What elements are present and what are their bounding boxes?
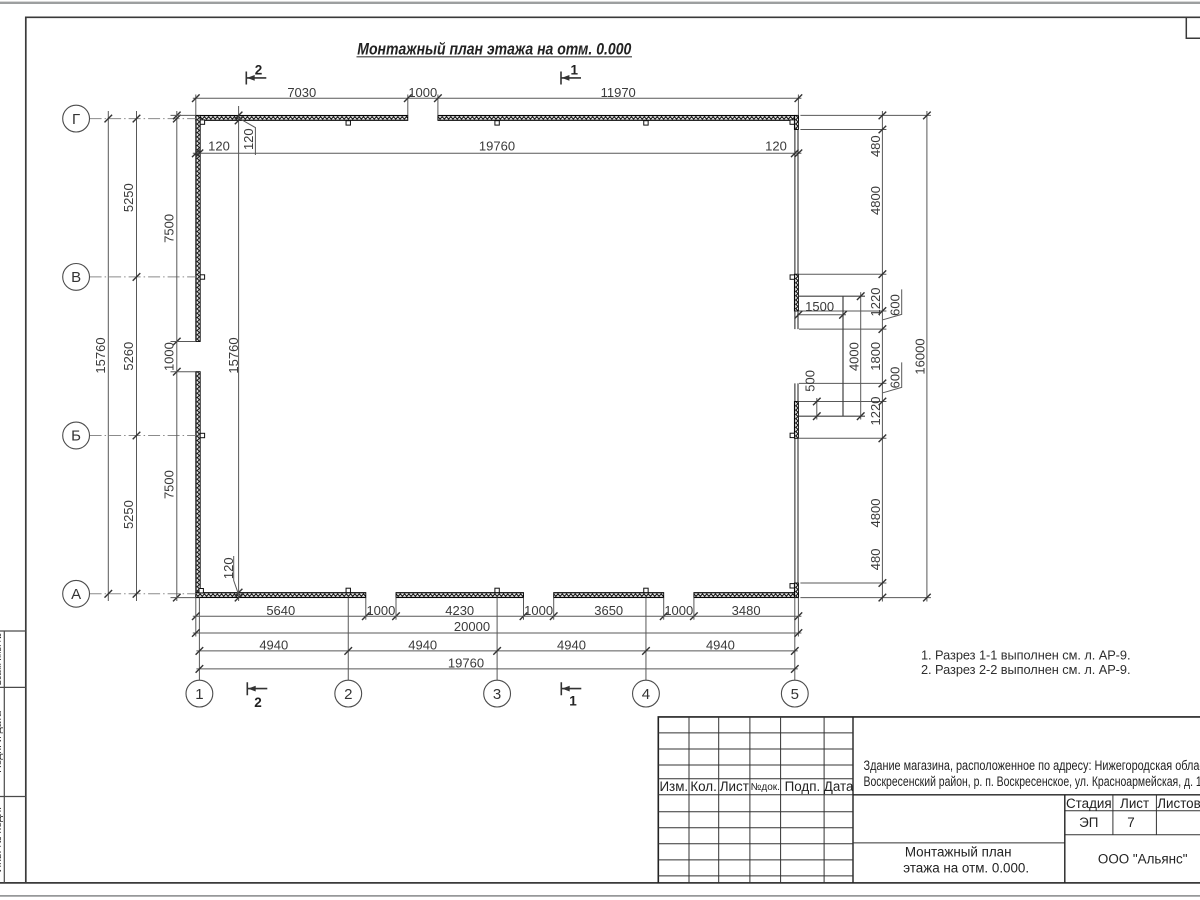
svg-text:3650: 3650 — [594, 603, 623, 618]
svg-text:1: 1 — [571, 63, 579, 78]
svg-text:500: 500 — [803, 370, 818, 392]
svg-text:19760: 19760 — [479, 138, 515, 153]
svg-text:4000: 4000 — [846, 342, 861, 371]
svg-text:Дата: Дата — [824, 779, 854, 794]
svg-text:1000: 1000 — [408, 85, 437, 100]
svg-text:3480: 3480 — [732, 603, 761, 618]
svg-text:1: 1 — [569, 694, 577, 709]
svg-text:А: А — [71, 586, 81, 603]
svg-text:1. Разрез 1-1 выполнен см. л.: 1. Разрез 1-1 выполнен см. л. АР-9. — [921, 648, 1131, 663]
svg-text:600: 600 — [888, 294, 903, 316]
svg-text:этажа на отм. 0.000.: этажа на отм. 0.000. — [903, 861, 1029, 876]
svg-text:4940: 4940 — [706, 637, 735, 652]
svg-text:4940: 4940 — [259, 637, 288, 652]
svg-text:Подп.: Подп. — [785, 779, 821, 794]
svg-text:120: 120 — [221, 557, 236, 579]
svg-text:4800: 4800 — [868, 186, 883, 215]
svg-text:7500: 7500 — [162, 470, 177, 499]
svg-text:480: 480 — [868, 549, 883, 571]
svg-text:1000: 1000 — [366, 603, 395, 618]
svg-text:Изм.: Изм. — [659, 779, 688, 794]
svg-text:2: 2 — [254, 695, 262, 710]
svg-text:1220: 1220 — [868, 288, 883, 317]
svg-text:№док.: №док. — [751, 782, 780, 793]
svg-text:5: 5 — [791, 686, 799, 703]
svg-text:Подп. и дата: Подп. и дата — [0, 711, 4, 773]
svg-text:1800: 1800 — [868, 342, 883, 371]
svg-text:11970: 11970 — [601, 85, 636, 100]
svg-text:Взам. инв. №: Взам. инв. № — [0, 633, 4, 685]
svg-text:2: 2 — [344, 686, 352, 703]
svg-text:Монтажный план этажа на отм. 0: Монтажный план этажа на отм. 0.000 — [357, 40, 631, 58]
svg-text:7500: 7500 — [162, 214, 177, 243]
svg-text:1000: 1000 — [664, 603, 693, 618]
svg-text:120: 120 — [208, 138, 230, 153]
svg-text:7: 7 — [1127, 815, 1134, 830]
svg-text:ООО "Альянс": ООО "Альянс" — [1098, 851, 1188, 866]
svg-text:120: 120 — [241, 128, 256, 150]
svg-text:Воскресенский район, р. п. Вос: Воскресенский район, р. п. Воскресенское… — [864, 774, 1200, 789]
svg-text:20000: 20000 — [454, 619, 490, 634]
svg-text:1500: 1500 — [805, 299, 834, 314]
svg-text:16000: 16000 — [913, 338, 928, 374]
svg-text:Здание магазина, расположенное: Здание магазина, расположенное по адресу… — [864, 758, 1200, 773]
svg-text:600: 600 — [888, 367, 903, 389]
svg-text:1000: 1000 — [162, 342, 177, 371]
svg-text:4800: 4800 — [868, 499, 883, 528]
svg-text:4940: 4940 — [408, 637, 437, 652]
svg-text:Б: Б — [71, 428, 81, 445]
svg-text:19760: 19760 — [448, 656, 484, 671]
svg-text:120: 120 — [765, 138, 787, 153]
svg-text:Лист: Лист — [720, 779, 749, 794]
svg-text:4940: 4940 — [557, 637, 586, 652]
svg-text:1000: 1000 — [524, 603, 553, 618]
svg-text:Инв. № подл.: Инв. № подл. — [0, 807, 4, 872]
svg-text:3: 3 — [493, 686, 501, 703]
svg-text:Стадия: Стадия — [1066, 796, 1112, 811]
svg-text:4: 4 — [642, 686, 650, 703]
svg-text:Листов: Листов — [1157, 796, 1200, 811]
svg-text:15760: 15760 — [93, 337, 108, 373]
svg-text:Г: Г — [72, 111, 80, 128]
svg-text:2: 2 — [255, 63, 263, 78]
svg-text:5260: 5260 — [121, 342, 136, 371]
svg-text:15760: 15760 — [226, 337, 241, 373]
svg-text:1220: 1220 — [868, 397, 883, 426]
svg-text:1: 1 — [195, 686, 203, 703]
svg-text:В: В — [71, 269, 81, 286]
svg-text:480: 480 — [868, 135, 883, 157]
svg-text:5250: 5250 — [121, 183, 136, 212]
svg-text:5640: 5640 — [266, 603, 295, 618]
svg-text:5250: 5250 — [121, 500, 136, 529]
svg-text:2. Разрез 2-2 выполнен см. л.: 2. Разрез 2-2 выполнен см. л. АР-9. — [921, 662, 1131, 677]
svg-text:4230: 4230 — [445, 603, 474, 618]
svg-text:Кол.: Кол. — [690, 779, 717, 794]
svg-text:ЭП: ЭП — [1079, 815, 1098, 830]
svg-text:Лист: Лист — [1120, 796, 1149, 811]
svg-text:Монтажный план: Монтажный план — [905, 844, 1012, 859]
svg-text:7030: 7030 — [287, 85, 316, 100]
